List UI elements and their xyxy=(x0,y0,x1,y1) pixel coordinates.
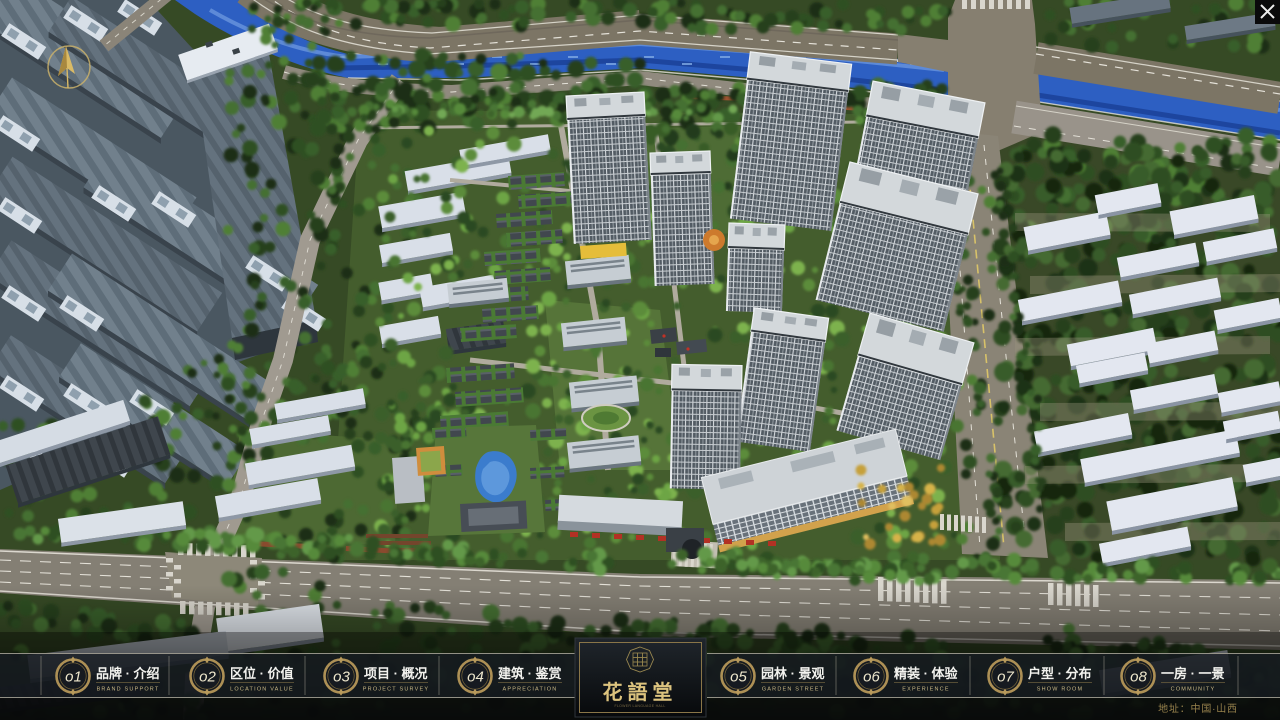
svg-text:FLOWER LANGUAGE HALL: FLOWER LANGUAGE HALL xyxy=(614,704,665,708)
svg-text:LOCATION VALUE: LOCATION VALUE xyxy=(230,687,294,693)
svg-text:EXPERIENCE: EXPERIENCE xyxy=(902,687,949,693)
svg-text:o3: o3 xyxy=(333,669,350,686)
svg-text:o2: o2 xyxy=(199,669,216,686)
svg-text:o4: o4 xyxy=(467,669,484,686)
svg-text:花語堂: 花語堂 xyxy=(603,680,678,704)
svg-text:COMMUNITY: COMMUNITY xyxy=(1171,687,1216,693)
svg-text:o1: o1 xyxy=(65,669,82,686)
svg-text:项目 · 概况: 项目 · 概况 xyxy=(364,666,428,681)
svg-text:园林 · 景观: 园林 · 景观 xyxy=(761,666,825,681)
svg-text:区位 · 价值: 区位 · 价值 xyxy=(230,666,294,681)
svg-text:o5: o5 xyxy=(730,669,747,686)
svg-text:o7: o7 xyxy=(997,669,1014,686)
svg-text:地址：中国·山西: 地址：中国·山西 xyxy=(1158,702,1238,715)
svg-text:GARDEN STREET: GARDEN STREET xyxy=(762,687,824,693)
svg-text:户型 · 分布: 户型 · 分布 xyxy=(1028,666,1092,681)
svg-text:o8: o8 xyxy=(1130,669,1147,686)
svg-text:精装 · 体验: 精装 · 体验 xyxy=(894,666,959,681)
svg-text:PROJECT SURVEY: PROJECT SURVEY xyxy=(363,687,429,693)
svg-text:一房 · 一景: 一房 · 一景 xyxy=(1161,666,1225,681)
svg-text:BRAND SUPPORT: BRAND SUPPORT xyxy=(97,687,160,693)
svg-text:o6: o6 xyxy=(863,669,880,686)
svg-text:APPRECIATION: APPRECIATION xyxy=(503,687,558,693)
svg-text:SHOW ROOM: SHOW ROOM xyxy=(1037,687,1084,693)
svg-text:建筑 · 鉴赏: 建筑 · 鉴赏 xyxy=(498,666,562,681)
svg-text:品牌 · 介绍: 品牌 · 介绍 xyxy=(96,666,160,681)
